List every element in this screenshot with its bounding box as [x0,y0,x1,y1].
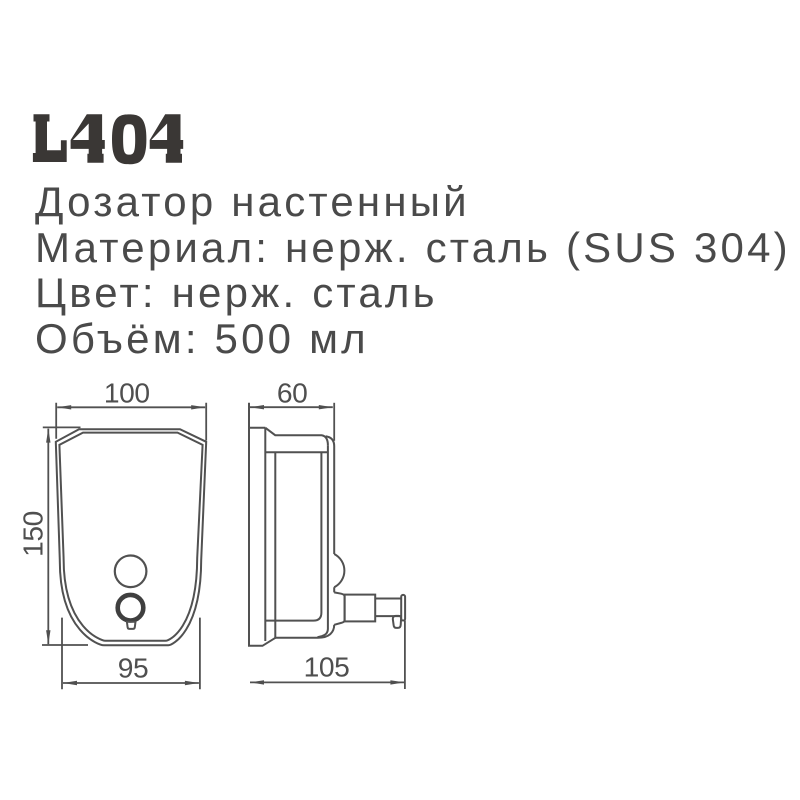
svg-text:105: 105 [304,651,350,683]
svg-text:100: 100 [104,376,150,408]
svg-text:60: 60 [277,376,308,408]
svg-text:150: 150 [17,511,49,557]
svg-text:95: 95 [118,652,149,684]
